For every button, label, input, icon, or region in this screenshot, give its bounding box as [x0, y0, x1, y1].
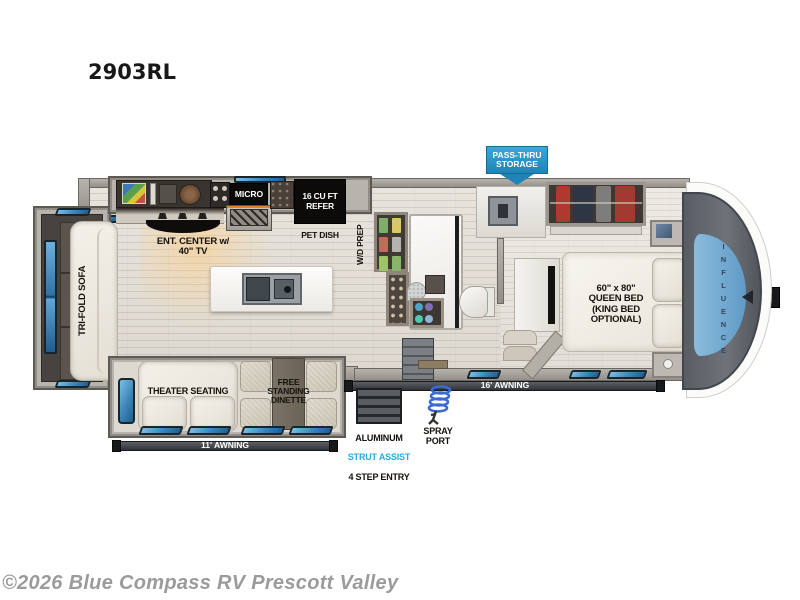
pantry-item-5: [379, 256, 388, 271]
ent-tv-screen: [122, 183, 146, 204]
awning-16-label: 16' AWNING: [481, 381, 529, 390]
pass-thru-callout: PASS-THRU STORAGE: [486, 146, 548, 174]
theater-seating-label: THEATER SEATING: [136, 387, 240, 397]
awning-16-cap-left: [344, 380, 353, 392]
ent-center-label: ENT. CENTER w/ 40" TV: [148, 237, 238, 258]
theater-slide-window: [118, 378, 135, 424]
clothes-navy: [573, 186, 593, 222]
queen-bed-label: 60" x 80" QUEEN BED (KING BED OPTIONAL): [566, 284, 666, 325]
sofa-slide-top-window: [55, 208, 92, 216]
bedroom-window-2: [606, 370, 647, 379]
tri-fold-sofa-label: TRI-FOLD SOFA: [78, 252, 92, 350]
fireplace-speaker: [179, 184, 201, 205]
brand-name-vertical: INFLUENCE: [714, 242, 728, 350]
cabinet-item-2: [425, 303, 433, 311]
bed-step-1: [503, 330, 537, 345]
pantry-item-1: [379, 218, 388, 233]
nightstand-top-decor: [656, 224, 672, 238]
clothes-red-1: [556, 186, 570, 222]
toilet-bowl: [459, 286, 488, 318]
sofa-slide-bottom-window: [55, 380, 92, 388]
theater-seat-right: [190, 396, 235, 430]
island-faucet: [284, 286, 291, 293]
sink-basin-left: [246, 277, 270, 301]
pass-thru-pointer: [500, 174, 534, 185]
steps-label-line1: ALUMINUM: [340, 434, 418, 444]
entry-steps: [356, 388, 402, 424]
burner-2: [222, 186, 227, 191]
entry-landing-steps: [402, 338, 434, 380]
bath-bedroom-wall: [497, 238, 504, 304]
watermark: ©2026 Blue Compass RV Prescott Valley: [2, 572, 398, 595]
entry-steps-label: ALUMINUM STRUT ASSIST 4 STEP ENTRY: [340, 424, 418, 492]
clothes-red-2: [615, 186, 635, 222]
bath-storage-cabinet: [386, 272, 409, 326]
cabinet-item-4: [425, 315, 433, 323]
spray-port-icon: [424, 384, 456, 426]
dinette-label: FREE STANDING DINETTE: [261, 378, 316, 406]
awning-11-label: 11' AWNING: [201, 441, 249, 450]
page-title: 2903RL: [88, 60, 176, 84]
steps-label-line2: STRUT ASSIST: [340, 453, 418, 463]
slide-window-2: [186, 426, 231, 435]
bedroom-window-1: [568, 370, 601, 379]
pet-dish-label: PET DISH: [294, 231, 346, 240]
wd-prep-label: W/D PREP: [356, 222, 368, 268]
bath-sink: [425, 275, 445, 294]
awning-11-cap-right: [329, 440, 338, 452]
bedroom-tv: [548, 266, 555, 324]
awning-11-cap-left: [112, 440, 121, 452]
awning-16-cap-right: [656, 380, 665, 392]
cabinet-item-3: [415, 315, 423, 323]
ent-gauge: [150, 183, 156, 205]
slide-window-3: [240, 426, 285, 435]
entry-shelf: [418, 360, 448, 369]
burner-4: [222, 196, 227, 201]
kitchen-cabinet: [270, 181, 294, 209]
slide-window-1: [138, 426, 183, 435]
vanity-faucet: [498, 204, 508, 218]
floorplan-page: 2903RL TRI-FOLD SOFA MICRO: [0, 0, 800, 600]
theater-seat-left: [142, 396, 187, 430]
nightstand-bottom-decor: [663, 359, 673, 369]
sofa-slide-window: [44, 240, 57, 354]
ent-control-panel: [159, 184, 177, 204]
clothes-gray: [596, 186, 611, 222]
pantry-item-2: [392, 218, 401, 233]
steps-label-line3: 4 STEP ENTRY: [340, 473, 418, 483]
cabinet-item-1: [415, 303, 423, 311]
burner-3: [213, 196, 218, 201]
hitch-arrow: [742, 290, 753, 304]
sofa-seat-edge: [97, 228, 115, 374]
slide-window-4: [288, 426, 333, 435]
pantry-item-4: [392, 237, 401, 252]
awning-11-bar: 11' AWNING: [114, 441, 336, 451]
door-side-window: [466, 370, 501, 379]
range-grate: [230, 209, 268, 226]
pass-thru-label: PASS-THRU STORAGE: [493, 151, 542, 169]
shower-door: [455, 216, 459, 328]
spray-port-label: SPRAY PORT: [412, 427, 464, 446]
microwave: MICRO: [230, 183, 268, 205]
pantry-item-6: [392, 256, 401, 271]
pantry-item-3: [379, 237, 388, 252]
wardrobe-drawer: [550, 226, 642, 235]
burner-1: [213, 186, 218, 191]
wardrobe-rod: [550, 202, 642, 204]
refrigerator: 16 CU FT REFER: [294, 179, 346, 224]
